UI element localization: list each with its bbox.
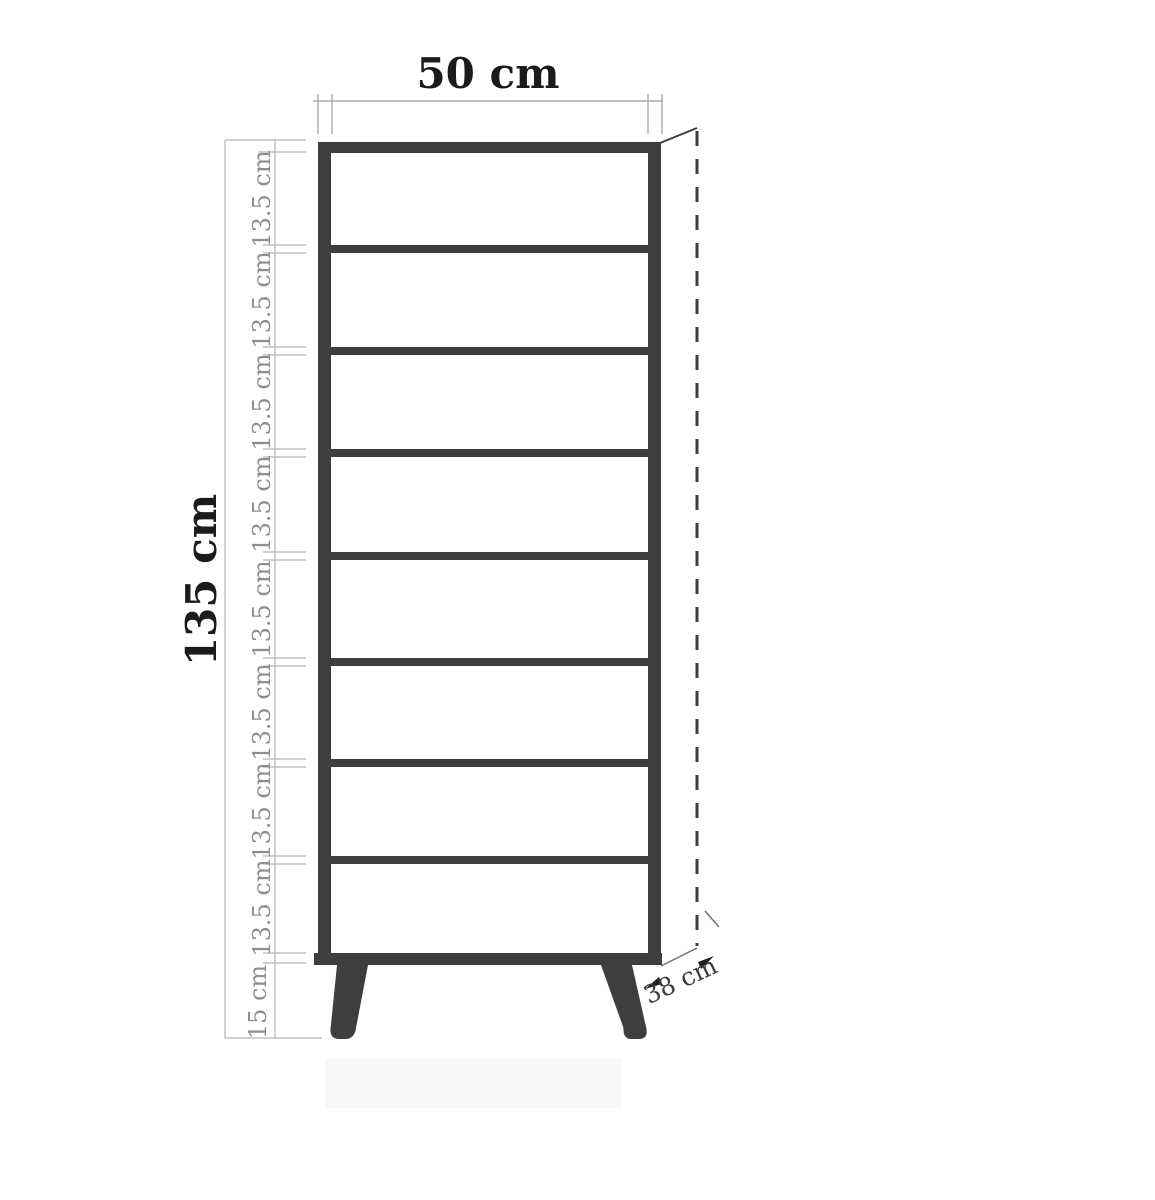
- floor-shadow: [325, 1058, 622, 1108]
- width-dimension-label: 50 cm: [416, 49, 559, 98]
- cabinet-left-side: [318, 142, 331, 965]
- shelf: [331, 449, 648, 457]
- dimension-drawing-page: 50 cm: [0, 0, 1155, 1200]
- segment-dimension-label: 13.5 cm: [248, 859, 276, 957]
- segment-dimension-label: 13.5 cm: [248, 150, 276, 248]
- shelf: [331, 759, 648, 767]
- shelf: [331, 552, 648, 560]
- height-dimension: 135 cm 13.5 cm 13.5 cm 13.5 cm 13.5 cm 1…: [177, 140, 322, 1039]
- shelf: [331, 347, 648, 355]
- segment-dimension-label: 13.5 cm: [248, 251, 276, 349]
- segment-dimension-label: 13.5 cm: [248, 560, 276, 658]
- depth-extension-tick: [705, 911, 719, 927]
- top-depth-edge: [660, 128, 697, 143]
- furniture-dimension-drawing: 50 cm: [0, 0, 1155, 1200]
- cabinet-top-panel: [318, 142, 661, 153]
- shelf: [331, 856, 648, 864]
- segment-dimension-label: 13.5 cm: [248, 663, 276, 761]
- cabinet-bottom-panel: [314, 953, 662, 965]
- depth-projection: [660, 128, 719, 966]
- segment-dimension-label: 13.5 cm: [248, 353, 276, 451]
- shelf: [331, 245, 648, 253]
- cabinet-right-side: [648, 142, 661, 965]
- segment-dimension-label: 13.5 cm: [248, 762, 276, 860]
- height-dimension-label: 135 cm: [177, 494, 226, 666]
- right-leg: [601, 965, 647, 1039]
- shelf: [331, 658, 648, 666]
- left-leg: [330, 965, 368, 1039]
- cabinet: [314, 142, 662, 1039]
- width-dimension: 50 cm: [313, 49, 663, 134]
- segment-dimension-label: 13.5 cm: [248, 455, 276, 553]
- leg-height-dimension-label: 15 cm: [244, 965, 272, 1040]
